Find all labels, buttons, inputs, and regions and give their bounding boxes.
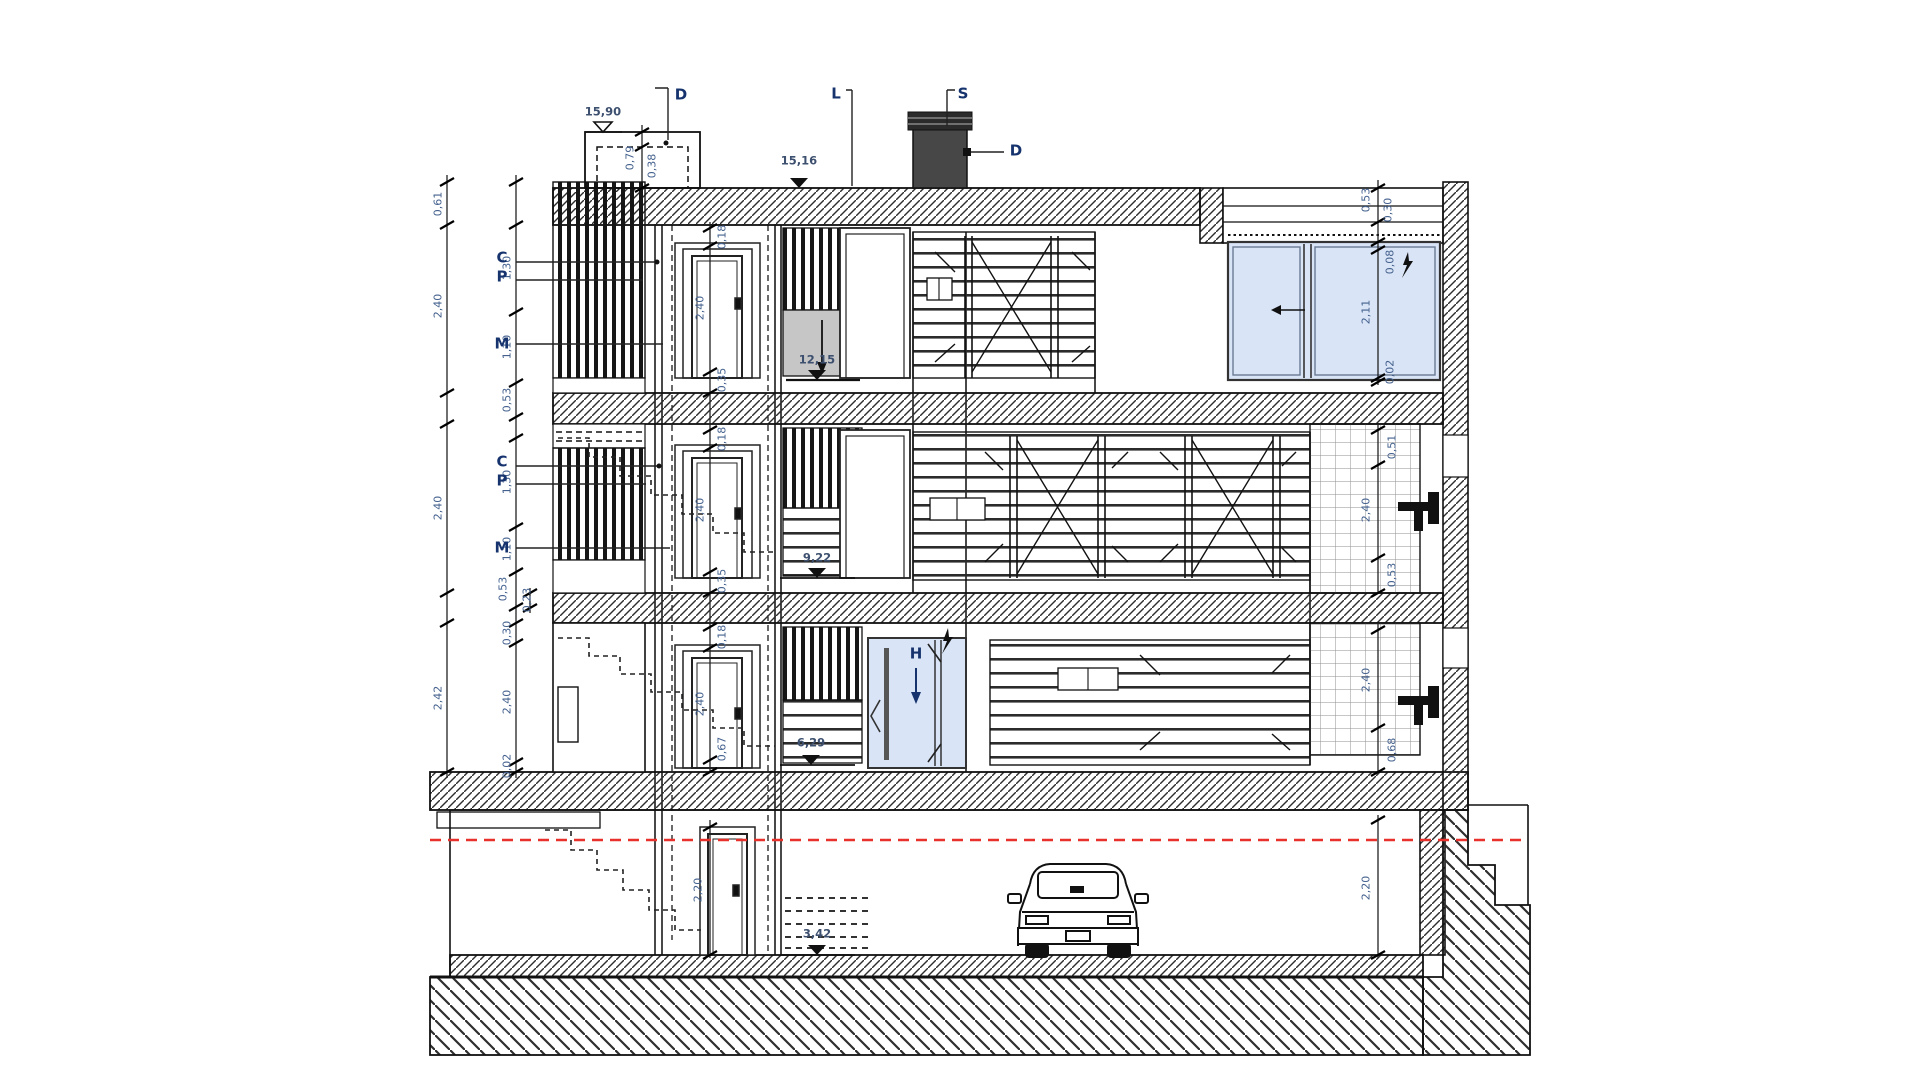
marker-c-floor3: C xyxy=(496,251,507,266)
stair-flight-dashed-basement xyxy=(545,830,701,930)
dim-f3-door-sill: 0,35 xyxy=(717,368,728,393)
level-floor3: 12,15 xyxy=(799,354,835,366)
dim-left-f1-total: 2,42 xyxy=(433,686,444,711)
dim-left-f2-total: 2,40 xyxy=(433,496,444,521)
section-linework xyxy=(0,0,1920,1080)
dim-right-f2-sill: 0,53 xyxy=(1387,563,1398,588)
dim-right-f1-clear: 2,40 xyxy=(1361,668,1372,693)
stair-screen-floor1 xyxy=(783,627,862,700)
dim-right-f2-clear: 2,40 xyxy=(1361,498,1372,523)
small-door-floor1-left xyxy=(558,687,578,742)
dim-left-f3-total: 2,40 xyxy=(433,294,444,319)
building-section-drawing: 0,61 2,40 2,40 2,42 1,30 1,10 0,53 1,30 … xyxy=(0,0,1920,1080)
chimney xyxy=(908,112,972,188)
door-handle-icon xyxy=(735,708,741,719)
dim-f2-door-head: 0,18 xyxy=(717,427,728,452)
dim-left-f2-extra: 0,23 xyxy=(522,588,533,613)
marker-p-floor3: P xyxy=(497,270,508,285)
basement-door xyxy=(700,827,755,955)
dim-right-parapet-inner: 0,30 xyxy=(1383,198,1394,223)
dim-f3-door-height: 2,40 xyxy=(695,296,706,321)
stair-door-floor2 xyxy=(675,445,760,578)
marker-s-top: S xyxy=(958,87,969,102)
left-cladding xyxy=(553,182,645,772)
dim-f3-door-head: 0,18 xyxy=(717,225,728,250)
dim-bulkhead-inner: 0,38 xyxy=(647,154,658,179)
dim-right-win-sill: 0,02 xyxy=(1385,360,1396,385)
earth-hatch xyxy=(430,977,1423,1055)
slat-panel-floor2 xyxy=(553,448,645,560)
basement xyxy=(545,827,1148,957)
right-parapet-band xyxy=(1223,188,1443,243)
marker-p-floor2: P xyxy=(497,474,508,489)
marker-m-floor3: M xyxy=(495,337,510,352)
marker-h-entrance: H xyxy=(910,647,923,662)
dim-right-f2-head: 0,51 xyxy=(1387,435,1398,460)
sliding-window-floor3 xyxy=(1228,242,1440,380)
dim-basement-door-height: 2,20 xyxy=(693,878,704,903)
dim-bulkhead-height: 0,79 xyxy=(625,146,636,171)
marker-l-top: L xyxy=(831,87,841,102)
level-floor2: 9,22 xyxy=(803,552,831,564)
dim-left-f1-base: 0,02 xyxy=(502,754,513,779)
floor1 xyxy=(558,623,1439,768)
stair-stringer-floor1 xyxy=(783,700,862,763)
car xyxy=(1008,864,1148,957)
marker-d-top: D xyxy=(675,88,687,103)
white-door2-floor2 xyxy=(840,430,910,578)
floor3 xyxy=(675,228,1440,380)
elevator-door-floor3 xyxy=(675,243,760,378)
stair-bulkhead xyxy=(585,125,700,190)
dim-right-win-head: 0,08 xyxy=(1385,250,1396,275)
dim-right-parapet-outer: 0,53 xyxy=(1361,188,1372,213)
door-handle-icon xyxy=(735,508,741,519)
dim-f2-door-sill: 0,35 xyxy=(717,569,728,594)
marker-d-chimney: D xyxy=(1010,144,1022,159)
dim-f1-door-height: 2,40 xyxy=(695,692,706,717)
garage-floor-slab xyxy=(450,955,1423,977)
level-bulkhead: 15,90 xyxy=(585,106,621,118)
dim-left-f1-head: 0,30 xyxy=(502,621,513,646)
slat-band-floor3 xyxy=(913,232,1095,378)
foundation-and-earth xyxy=(430,810,1530,1055)
door-handle-icon xyxy=(733,885,739,896)
dim-f2-door-height: 2,40 xyxy=(695,498,706,523)
level-roof: 15,16 xyxy=(781,155,817,167)
dim-left-f2-sill: 0,53 xyxy=(498,577,509,602)
marker-m-floor2: M xyxy=(495,541,510,556)
level-basement: 3,42 xyxy=(803,928,831,940)
white-door-floor3 xyxy=(840,228,910,378)
dim-f1-door-sill: 0,67 xyxy=(717,737,728,762)
lower-stair-dashed xyxy=(785,898,868,948)
garage-door-band xyxy=(990,640,1310,765)
level-floor1: 6,29 xyxy=(797,737,825,749)
dim-left-parapet: 0,61 xyxy=(433,192,444,217)
marker-c-floor2: C xyxy=(496,455,507,470)
dim-right-f1-sill: 0,68 xyxy=(1387,738,1398,763)
dim-right-win-height: 2,11 xyxy=(1361,300,1372,325)
dim-f1-door-head: 0,18 xyxy=(717,625,728,650)
dim-left-f3-sill: 0,53 xyxy=(502,388,513,413)
dim-right-basement-clear: 2,20 xyxy=(1361,876,1372,901)
door-handle-icon xyxy=(735,298,741,309)
dim-left-f1-clear: 2,40 xyxy=(502,690,513,715)
floor2 xyxy=(558,424,1439,593)
